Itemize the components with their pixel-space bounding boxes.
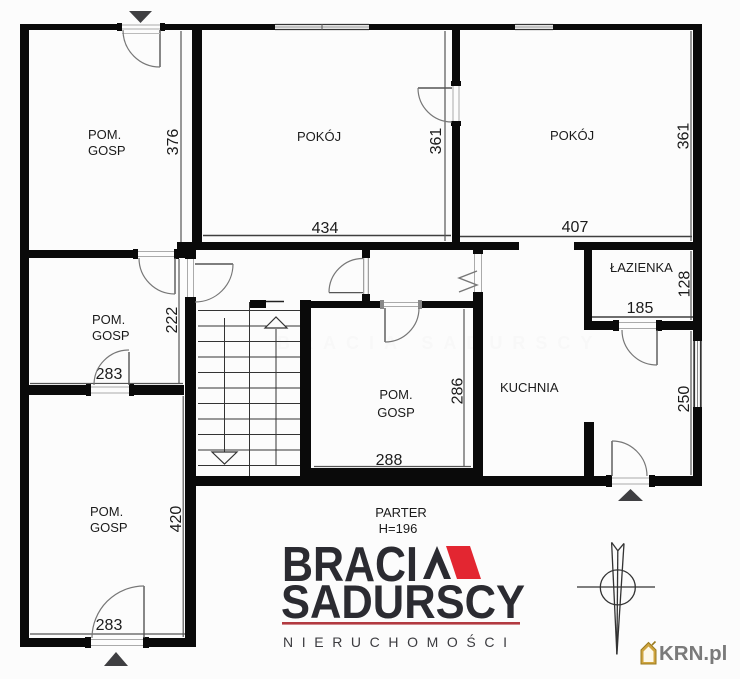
svg-text:KRN.pl: KRN.pl	[659, 642, 727, 665]
svg-text:283: 283	[96, 366, 123, 383]
svg-text:420: 420	[168, 506, 185, 533]
svg-text:POM.: POM.	[92, 312, 125, 327]
svg-text:BRACIA SADURSCY: BRACIA SADURSCY	[277, 333, 602, 353]
svg-text:376: 376	[165, 129, 182, 156]
svg-text:KUCHNIA: KUCHNIA	[500, 380, 559, 395]
svg-text:GOSP: GOSP	[88, 143, 126, 158]
svg-text:SADURSCY: SADURSCY	[281, 575, 525, 628]
svg-text:GOSP: GOSP	[377, 405, 415, 420]
svg-text:POM.: POM.	[88, 127, 121, 142]
svg-text:185: 185	[627, 300, 654, 317]
svg-text:407: 407	[562, 219, 589, 236]
svg-text:POM.: POM.	[379, 387, 412, 402]
svg-text:POM.: POM.	[90, 504, 123, 519]
svg-text:361: 361	[676, 123, 693, 150]
svg-text:250: 250	[676, 386, 693, 413]
svg-text:361: 361	[428, 128, 445, 155]
svg-text:286: 286	[450, 378, 467, 405]
svg-text:128: 128	[677, 271, 694, 298]
svg-text:222: 222	[164, 307, 181, 334]
svg-text:H=196: H=196	[379, 521, 418, 536]
svg-text:NIERUCHOMOŚCI: NIERUCHOMOŚCI	[283, 633, 507, 650]
svg-text:POKÓJ: POKÓJ	[297, 129, 341, 144]
svg-text:ŁAZIENKA: ŁAZIENKA	[610, 260, 673, 275]
svg-text:434: 434	[312, 220, 339, 237]
svg-text:288: 288	[376, 452, 403, 469]
svg-text:POKÓJ: POKÓJ	[550, 128, 594, 143]
svg-text:PARTER: PARTER	[375, 505, 427, 520]
svg-text:283: 283	[96, 617, 123, 634]
svg-text:GOSP: GOSP	[90, 520, 128, 535]
svg-text:GOSP: GOSP	[92, 328, 130, 343]
